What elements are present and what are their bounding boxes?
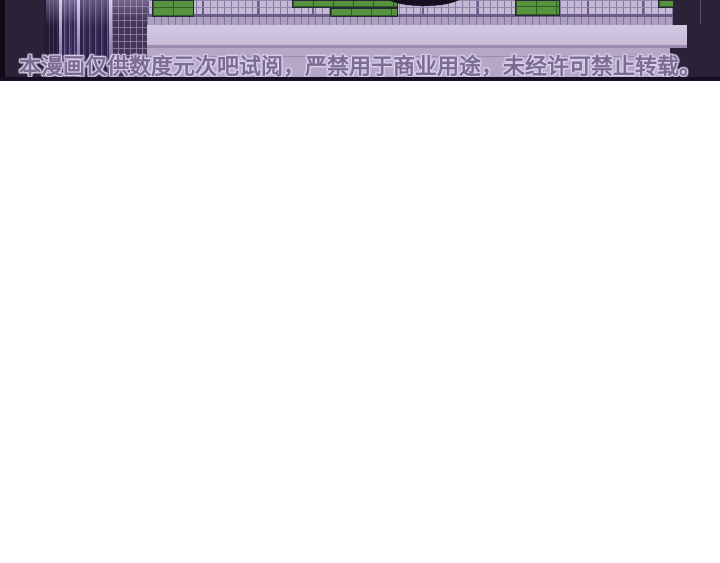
green-window xyxy=(330,8,398,17)
comic-strip: 本漫画仅供数度元次吧试阅，严禁用于商业用途，未经许可禁止转载。 xyxy=(0,0,720,81)
watermark-text: 本漫画仅供数度元次吧试阅，严禁用于商业用途，未经许可禁止转载。 xyxy=(0,52,720,77)
green-window xyxy=(658,0,674,8)
building-wall-band xyxy=(147,25,687,45)
green-window xyxy=(152,0,194,17)
page-background: 本漫画仅供数度元次吧试阅，严禁用于商业用途，未经许可禁止转载。 xyxy=(0,0,720,563)
wall-edge-highlight xyxy=(700,0,701,24)
green-window xyxy=(292,0,398,8)
green-window xyxy=(515,0,560,16)
blank-page-area xyxy=(0,81,720,563)
